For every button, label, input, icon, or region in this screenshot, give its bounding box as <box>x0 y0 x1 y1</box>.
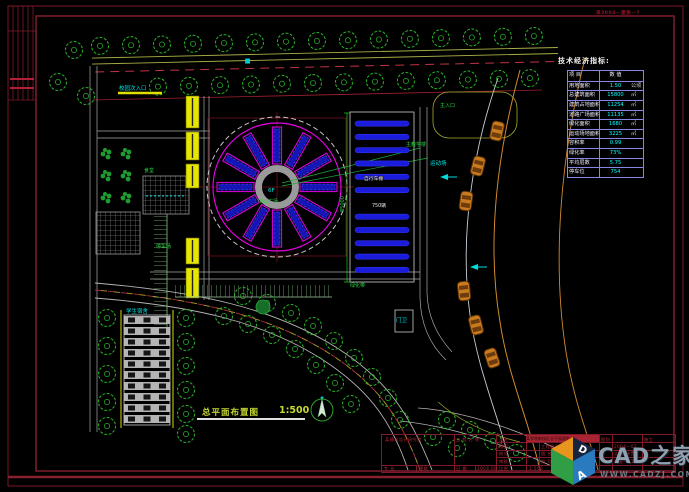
tree-icon <box>91 37 108 54</box>
tb-review: 审核 <box>499 459 508 464</box>
row-label: 用地面积 <box>568 82 600 91</box>
car-icon <box>457 281 471 301</box>
crosswalk-marker <box>245 58 250 63</box>
tree-icon <box>211 76 228 93</box>
tree-icon <box>463 29 480 46</box>
caption-scale: 1:500 <box>279 405 309 416</box>
car-icon <box>468 314 484 335</box>
plant-icon <box>101 192 112 203</box>
tb-scale: 1:500 <box>529 466 543 471</box>
annotation-shed: 自行车棚 <box>364 175 383 182</box>
car-icon <box>489 120 505 141</box>
tree-icon <box>184 35 201 52</box>
row-label: 道路广场面积 <box>568 111 600 120</box>
table-row: 总建筑面积 15800 ㎡ <box>568 90 643 100</box>
row-value: 11135 <box>600 111 631 120</box>
tree-icon <box>264 327 281 344</box>
row-value: 3225 <box>600 130 631 139</box>
tree-icon <box>283 305 300 322</box>
tree-icon <box>401 30 418 47</box>
tree-icon <box>178 406 195 423</box>
tree-icon <box>397 72 414 89</box>
car-icon <box>483 347 500 369</box>
table-row: 停车位 754 <box>568 167 643 177</box>
tree-icon <box>50 74 67 91</box>
row-label: 平均层数 <box>568 159 600 168</box>
planting-clusters <box>101 148 132 203</box>
cad-drawing-sheet: 校园次入口 主入口 6F 中心广场 主教学楼 自行车棚 750辆 停车场 学生宿… <box>0 0 689 492</box>
tree-icon <box>428 72 445 89</box>
blue-bar-field <box>344 112 414 282</box>
tree-icon <box>215 34 232 51</box>
tree-icon <box>521 69 538 86</box>
plant-icon <box>121 148 132 159</box>
tree-icon <box>366 73 383 90</box>
tree-cluster-topleft <box>50 42 95 105</box>
dormitory-building <box>99 310 195 443</box>
tree-icon <box>180 77 197 94</box>
bush-icon <box>256 300 270 314</box>
row-unit <box>631 159 643 168</box>
row-unit <box>631 149 643 158</box>
row-value: 11254 <box>600 101 631 110</box>
plant-icon <box>121 192 132 203</box>
wing <box>217 182 254 191</box>
row-label: 绿化面积 <box>568 120 600 129</box>
table-row: 道路广场面积 11135 ㎡ <box>568 110 643 120</box>
tree-icon <box>273 75 290 92</box>
annotation-dimension: 85000 <box>340 196 346 212</box>
annotation-plaza: 中心广场 <box>258 198 278 205</box>
annotation-floors: 6F <box>268 188 275 194</box>
row-label: 运动场地面积 <box>568 130 600 139</box>
tb-scale-label: 比例 <box>499 466 508 471</box>
tree-icon <box>153 36 170 53</box>
annotation-shed-count: 750辆 <box>372 202 386 209</box>
annotation-entrance: 校园次入口 <box>119 84 147 92</box>
tree-icon <box>304 74 321 91</box>
row-label: 容积率 <box>568 139 600 148</box>
row-value: 0.99 <box>600 139 631 148</box>
tree-icon <box>370 31 387 48</box>
tree-icon <box>122 36 139 53</box>
tree-icon <box>308 357 325 374</box>
row-value: 754 <box>600 168 631 177</box>
tree-icon <box>335 74 352 91</box>
econ-header-row: 项 目 数 值 <box>568 71 643 81</box>
tree-icon <box>326 333 343 350</box>
drawing-caption: 总平面布置图 1:500 <box>197 403 367 423</box>
annotation-gate: 门卫 <box>396 316 408 324</box>
tree-icon <box>346 350 363 367</box>
tb-major: 建筑 <box>419 466 428 471</box>
tree-icon <box>178 334 195 351</box>
row-value: 73% <box>600 149 631 158</box>
annotation-parking: 停车场 <box>156 243 171 250</box>
plant-icon <box>121 170 132 181</box>
flow-arrows <box>440 174 487 270</box>
row-unit <box>631 139 643 148</box>
annotation-canteen: 食堂 <box>144 167 154 174</box>
logo-cube-icon: D A <box>548 434 598 488</box>
tree-icon <box>178 382 195 399</box>
row-unit: ㎡ <box>631 91 643 100</box>
table-row: 建筑占地面积 11254 ㎡ <box>568 100 643 110</box>
tree-icon <box>78 88 95 105</box>
econ-header-unit <box>631 71 643 81</box>
row-value: 1.50 <box>600 82 631 91</box>
wing <box>300 182 337 191</box>
annotation-sportsground: 运动场 <box>430 159 447 167</box>
row-label: 建筑占地面积 <box>568 101 600 110</box>
row-value: 5.75 <box>600 159 631 168</box>
caption-underline <box>197 418 305 420</box>
tree-icon <box>99 394 116 411</box>
tb-design: 设计 <box>499 437 508 442</box>
econ-table-grid: 项 目 数 值 用地面积 1.50 公顷 总建筑面积 15800 ㎡ 建筑占地面… <box>567 70 644 178</box>
tree-icon <box>308 32 325 49</box>
wing <box>272 127 281 164</box>
car-icon <box>470 155 486 176</box>
tb-owner-label: 工 程 名 称 <box>456 437 480 442</box>
logo-site-url: WWW.CADZJ.COM <box>600 470 689 479</box>
row-unit: ㎡ <box>631 120 643 129</box>
tree-icon <box>240 316 257 333</box>
plant-icon <box>101 170 112 181</box>
tree-icon <box>439 412 456 429</box>
cars-group <box>457 120 505 368</box>
tree-icon <box>432 29 449 46</box>
row-value: 15800 <box>600 91 631 100</box>
tree-row-north <box>91 27 542 54</box>
table-row: 绿化率 73% <box>568 148 643 158</box>
tree-icon <box>99 310 116 327</box>
table-row: 平均层数 5.75 <box>568 158 643 168</box>
wing <box>272 210 281 247</box>
tree-icon <box>99 366 116 383</box>
tb-date-label: 日 期 <box>456 466 467 471</box>
table-row: 绿化面积 1680 ㎡ <box>568 119 643 129</box>
row-unit: ㎡ <box>631 130 643 139</box>
tree-icon <box>178 310 195 327</box>
tree-icon <box>339 32 356 49</box>
tb-date: 2004.06 <box>477 466 497 471</box>
tb-draft: 制图 <box>499 444 508 449</box>
row-unit <box>631 168 643 177</box>
tree-icon <box>490 70 507 87</box>
frame-stamp: 津2004—建施—7 <box>583 10 653 16</box>
econ-header-label: 项 目 <box>568 71 600 81</box>
table-row: 用地面积 1.50 公顷 <box>568 81 643 91</box>
row-label: 总建筑面积 <box>568 91 600 100</box>
tree-icon <box>305 318 322 335</box>
econ-table-title: 技术经济指标: <box>558 56 610 66</box>
tree-icon <box>99 338 116 355</box>
row-label: 绿化率 <box>568 149 600 158</box>
logo-site-name: CAD之家 <box>598 440 689 470</box>
tree-icon <box>364 369 381 386</box>
tb-org: 某建筑设计研究院 <box>385 437 422 442</box>
tree-icon <box>494 28 511 45</box>
plant-icon <box>101 148 112 159</box>
tree-icon <box>287 341 304 358</box>
annotation-greenbelt: 绿化带 <box>350 282 365 289</box>
tree-icon <box>242 76 259 93</box>
row-unit: 公顷 <box>631 82 643 91</box>
tree-icon <box>525 27 542 44</box>
annotation-dorm: 学生宿舍 <box>126 307 149 315</box>
annotation-main-entrance: 主入口 <box>440 102 455 109</box>
tb-check: 校对 <box>499 451 508 456</box>
tb-major-label: 专 业 <box>384 466 395 471</box>
annotation-teaching-bldg: 主教学楼 <box>406 141 426 148</box>
car-icon <box>459 191 474 211</box>
table-row: 容积率 0.99 <box>568 138 643 148</box>
top-street <box>92 47 558 72</box>
row-unit: ㎡ <box>631 101 643 110</box>
tree-icon <box>66 42 83 59</box>
tree-icon <box>99 418 116 435</box>
tree-icon <box>178 358 195 375</box>
watermark-logo: D A CAD之家 WWW.CADZJ.COM <box>544 430 689 492</box>
tree-icon <box>246 34 263 51</box>
tree-icon <box>277 33 294 50</box>
tree-icon <box>178 426 195 443</box>
frame-left-strip <box>8 6 36 100</box>
caption-title: 总平面布置图 <box>202 406 259 418</box>
tree-icon <box>327 375 344 392</box>
row-unit: ㎡ <box>631 111 643 120</box>
econ-header-value: 数 值 <box>600 71 631 81</box>
row-label: 停车位 <box>568 168 600 177</box>
row-value: 1680 <box>600 120 631 129</box>
tree-icon <box>459 71 476 88</box>
table-row: 运动场地面积 3225 ㎡ <box>568 129 643 139</box>
